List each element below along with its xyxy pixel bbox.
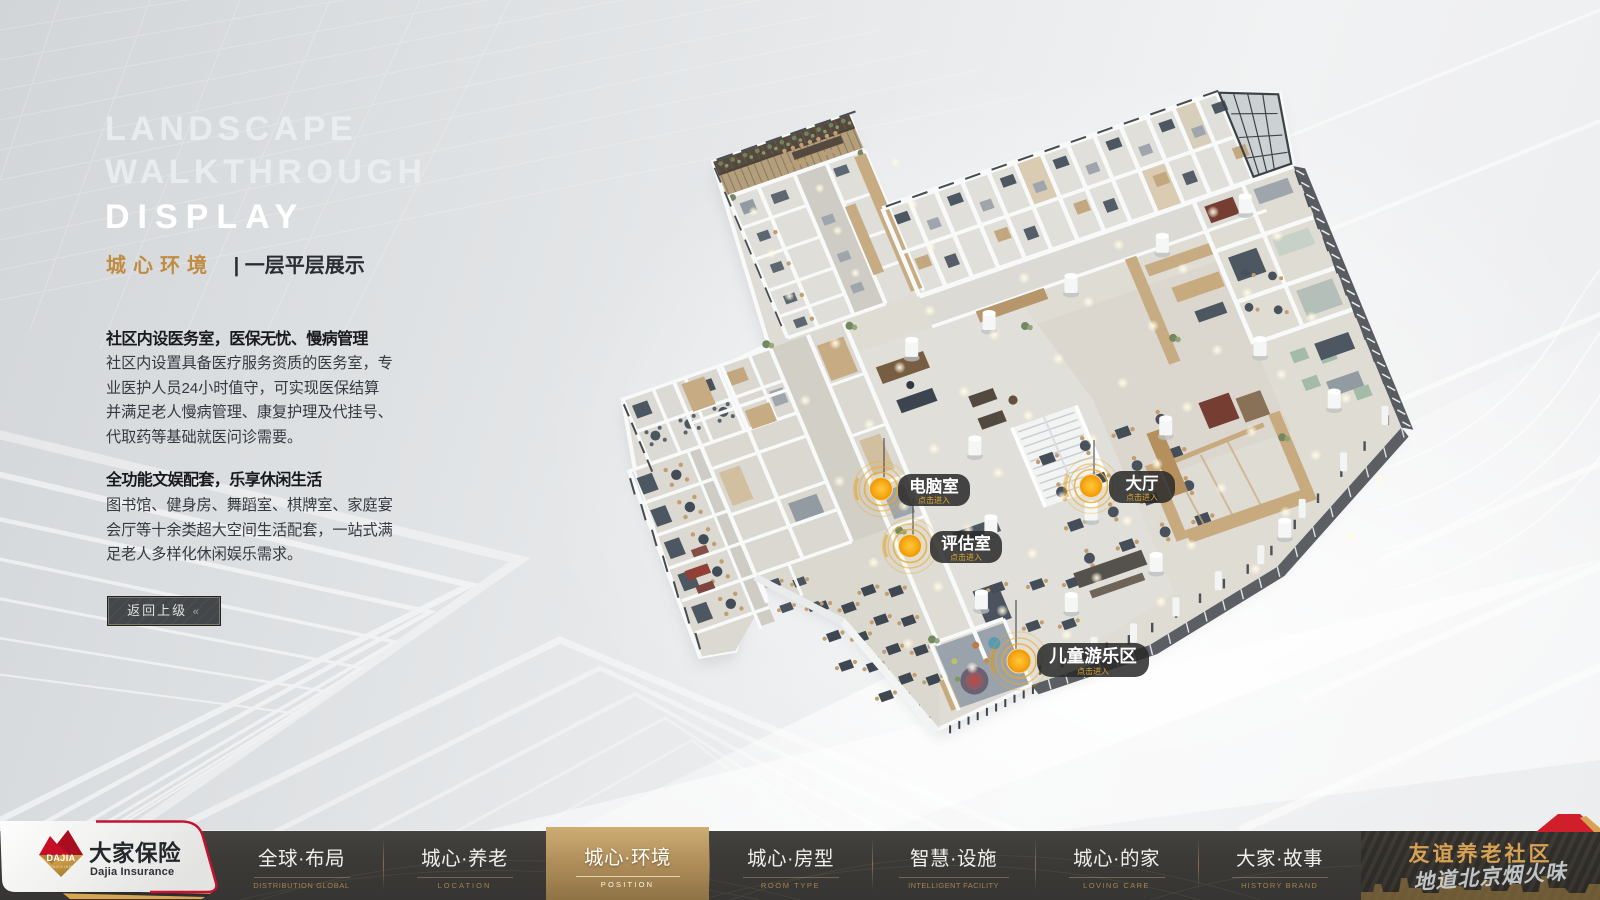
svg-text:BAOXIAN: BAOXIAN: [49, 864, 72, 869]
svg-text:电脑室: 电脑室: [909, 476, 959, 496]
svg-text:儿童游乐区: 儿童游乐区: [1048, 646, 1137, 666]
svg-text:大厅: 大厅: [1126, 473, 1160, 493]
svg-text:点击进入: 点击进入: [1077, 666, 1109, 676]
svg-text:点击进入: 点击进入: [950, 552, 982, 562]
svg-text:评估室: 评估室: [941, 533, 991, 553]
svg-text:Dajia Insurance: Dajia Insurance: [90, 866, 174, 878]
svg-text:点击进入: 点击进入: [918, 495, 950, 505]
svg-text:大家保险: 大家保险: [89, 840, 181, 866]
svg-text:点击进入: 点击进入: [1126, 492, 1158, 502]
svg-text:DAJIA: DAJIA: [46, 853, 75, 863]
